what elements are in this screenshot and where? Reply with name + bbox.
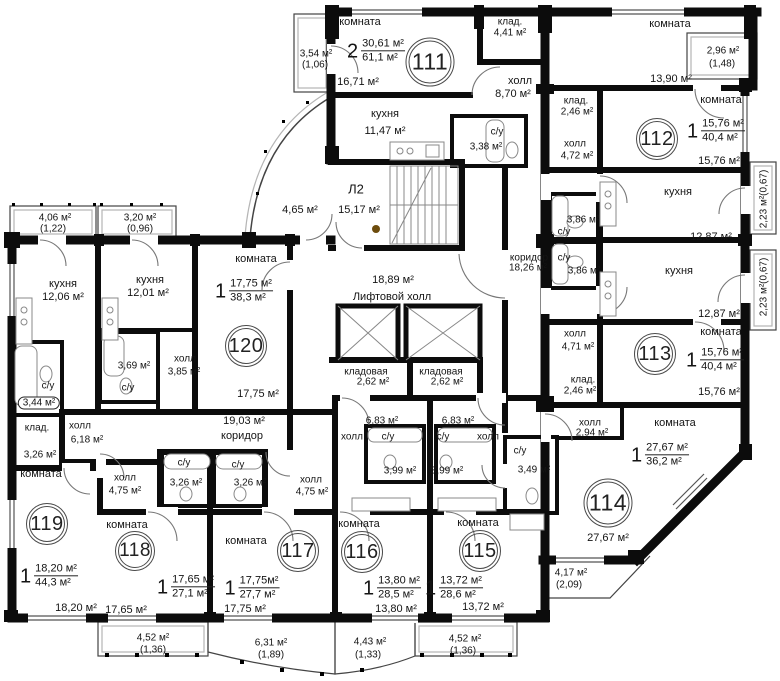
apt116-hall-area: 6,83 м² [366, 416, 398, 427]
apt116-number-circle: 116 [341, 531, 383, 573]
apt118-balcony-area: 4,52 м² [137, 633, 169, 644]
apt118-room-label: комната [106, 519, 148, 531]
apt111-balcony-coef: (1,06) [302, 60, 328, 71]
apt120-wc-area: 3,69 м² [118, 361, 150, 372]
apt116-total-area: 28,5 м² [377, 589, 421, 602]
apt119-kitchen-label: кухня [49, 278, 77, 290]
apt120-total-area: 38,3 м² [229, 292, 273, 305]
apt118-wc-area: 3,26 м² [170, 478, 202, 489]
apt112-balcony-top-area: 2,96 м² [707, 46, 739, 57]
floor-plan: Л2 15,17 м² 4,65 м² 18,89 м² Лифтовой хо… [0, 0, 780, 681]
apt118-total-area: 27,1 м² [171, 588, 215, 601]
apt112-balcony-side: 2,23 м²(0,67) [759, 170, 770, 229]
apt112-kitchen-label: кухня [664, 186, 692, 198]
apt117-wc-label: с/у [232, 460, 245, 471]
apt120-balcony-coef: (0,96) [127, 224, 153, 235]
apt120-room-area: 17,75 м² [237, 388, 279, 400]
apt113-balcony-side: 2,23 м²(0,67) [759, 258, 770, 317]
apt120-balcony-area: 3,20 м² [124, 213, 156, 224]
apt119-wc-label: с/у [42, 381, 55, 392]
apt118-hall-label: холл [114, 473, 136, 484]
apt115-hall-label: холл [477, 432, 499, 443]
storeroom2-area: 2,62 м² [431, 377, 463, 388]
apt114-wc-area: 3,49 м² [518, 465, 550, 476]
apt119-room-label: комната [20, 468, 62, 480]
lift-hall-label: Лифтовой холл [353, 291, 431, 303]
apt112-wc-label: с/у [558, 227, 571, 238]
apt113-room-area: 15,76 м² [698, 386, 740, 398]
apt113-room-label: комната [700, 326, 742, 338]
apt114-summary: 1 27,67 м²36,2 м² [631, 441, 689, 468]
apt119-hall-area: 6,18 м² [71, 435, 103, 446]
apt116-balcony-area: 4,43 м² [354, 637, 386, 648]
apt120-summary: 1 17,75 м²38,3 м² [215, 277, 273, 304]
apt115-wc-area: 3,99 м² [431, 466, 463, 477]
apt112-living-area: 15,76 м² [701, 117, 745, 131]
apt111-rooms-count: 2 [347, 41, 358, 61]
apt118-living-area: 17,65 м² [171, 573, 215, 587]
apt118-hall-area: 4,75 м² [109, 486, 141, 497]
apt117-balcony-coef: (1,89) [258, 650, 284, 661]
apt115-living-area: 13,72 м² [439, 574, 483, 588]
apt111-pantry-area: 4,41 м² [494, 28, 526, 39]
corridor-left-area: 19,03 м² [223, 415, 265, 427]
apt117-rooms-count: 1 [225, 578, 236, 598]
storeroom1-area: 2,62 м² [357, 377, 389, 388]
apt111-living-area: 30,61 м² [361, 37, 405, 51]
apt116-summary: 1 13,80 м²28,5 м² [363, 574, 421, 601]
apt116-room-label: комната [338, 518, 380, 530]
apt112-kitchen-area: 12,87 м² [690, 231, 732, 243]
apt112-wc-area: 3,86 м² [567, 215, 599, 226]
apt113-kitchen-label: кухня [665, 265, 693, 277]
apt119-balcony-coef: (1,22) [40, 224, 66, 235]
apt115-room-label: комната [457, 517, 499, 529]
apt111-pantry-label: клад. [498, 17, 523, 28]
corridor-left-label: коридор [221, 430, 263, 442]
apt112-summary: 1 15,76 м²40,4 м² [687, 117, 745, 144]
apt119-kitchen-area: 12,06 м² [42, 291, 84, 303]
apt113-hall-label: холл [564, 329, 586, 340]
apt113-wc-label: с/у [558, 253, 571, 264]
apt116-balcony-coef: (1,33) [355, 650, 381, 661]
apt117-room-label: комната [225, 535, 267, 547]
apt120-kitchen-area: 12,01 м² [127, 287, 169, 299]
apt114-number-circle: 114 [584, 479, 633, 528]
apt117-total-area: 27,7 м² [239, 589, 280, 602]
lift-hall-area: 18,89 м² [372, 274, 414, 286]
apt117-hall-label: холл [300, 475, 322, 486]
apt117-balcony-area: 6,31 м² [255, 638, 287, 649]
apt114-rooms-count: 1 [631, 445, 642, 465]
stair-marker-dot [372, 225, 380, 233]
apt112-pantry-area: 2,46 м² [561, 107, 593, 118]
apt112-pantry-label: клад. [564, 96, 589, 107]
apt118-balcony-coef: (1,36) [140, 645, 166, 656]
stair-area: 15,17 м² [338, 204, 380, 216]
apt118-number-circle: 118 [115, 531, 155, 571]
apt111-number-circle: 111 [406, 38, 455, 87]
apt116-hall-label: холл [341, 432, 363, 443]
stair-label: Л2 [348, 182, 364, 197]
apt119-living-area: 18,20 м² [34, 562, 78, 576]
apt112-room2-area: 15,76 м² [698, 155, 740, 167]
apt113-pantry-label: клад. [571, 375, 596, 386]
apt117-room-area: 17,75 м² [224, 603, 266, 615]
apt112-room1-area: 13,90 м² [650, 73, 692, 85]
apt120-number-circle: 120 [225, 325, 267, 367]
apt116-wc-area: 3,99 м² [384, 466, 416, 477]
apt117-number-circle: 117 [277, 530, 319, 572]
apt117-hall-area: 4,75 м² [296, 487, 328, 498]
apt111-total-area: 61,1 м² [361, 52, 405, 65]
apt119-rooms-count: 1 [20, 566, 31, 586]
apt112-room2-label: комната [700, 94, 742, 106]
apt119-summary: 1 18,20 м²44,3 м² [20, 562, 78, 589]
apt116-living-area: 13,80 м² [377, 574, 421, 588]
apt119-hall-label: холл [69, 421, 91, 432]
apt113-number-circle: 113 [634, 333, 676, 375]
apt112-hall-area: 4,72 м² [561, 151, 593, 162]
staircase [390, 166, 458, 244]
apt115-balcony-coef: (1,36) [450, 646, 476, 657]
apt116-rooms-count: 1 [363, 578, 374, 598]
apt115-summary: 1 13,72 м²28,6 м² [425, 574, 483, 601]
apt119-wc-area: 3,44 м² [18, 397, 60, 410]
apt118-summary: 1 17,65 м²27,1 м² [157, 573, 215, 600]
apt111-summary: 2 30,61 м²61,1 м² [347, 37, 405, 64]
apt111-kitchen-area: 11,47 м² [365, 125, 406, 137]
apt118-wc-label: с/у [178, 458, 191, 469]
apt114-hall-area: 2,94 м² [576, 428, 608, 439]
apt111-balcony-area: 3,54 м² [300, 49, 332, 60]
apt119-pantry-label: клад. [25, 423, 50, 434]
apt115-wc-label: с/у [437, 432, 450, 443]
lift-shafts [338, 306, 480, 360]
apt118-rooms-count: 1 [157, 577, 168, 597]
apt115-room-area: 13,72 м² [462, 601, 504, 613]
apt114-room-label: комната [654, 417, 696, 429]
apt113-pantry-area: 2,46 м² [564, 386, 596, 397]
apt112-total-area: 40,4 м² [701, 132, 745, 145]
apt114-total-area: 36,2 м² [645, 456, 689, 469]
apt117-living-area: 17,75м² [239, 574, 280, 588]
apt113-summary: 1 15,76 м²40,4 м² [686, 346, 744, 373]
apt120-hall-label: холл [174, 354, 196, 365]
apt114-living-area: 27,67 м² [645, 441, 689, 455]
apt120-rooms-count: 1 [215, 281, 226, 301]
apt115-hall-area: 6,83 м² [442, 416, 474, 427]
corridor-right-area: 18,26 м² [509, 263, 547, 274]
apt114-room-area: 27,67 м² [587, 532, 629, 544]
apt115-number-circle: 115 [459, 530, 501, 572]
apt111-wc-area: 3,38 м² [470, 142, 502, 153]
apt115-rooms-count: 1 [425, 578, 436, 598]
apt119-balcony-area: 4,06 м² [39, 213, 71, 224]
apt120-living-area: 17,75 м² [229, 277, 273, 291]
apt115-total-area: 28,6 м² [439, 589, 483, 602]
apt113-living-area: 15,76 м² [700, 346, 744, 360]
apt114-wc-label: с/у [514, 446, 527, 457]
apt113-total-area: 40,4 м² [700, 361, 744, 374]
apt119-room-area: 18,20 м² [55, 602, 97, 614]
apt117-wc-area: 3,26 м² [234, 478, 266, 489]
apt111-room-area: 16,71 м² [337, 76, 379, 88]
apt114-balcony-coef: (2,09) [556, 580, 582, 591]
vestibule-area: 4,65 м² [282, 204, 318, 216]
apt113-kitchen-area: 12,87 м² [698, 308, 740, 320]
apt120-hall-area: 3,85 м² [168, 367, 200, 378]
apt113-hall-area: 4,71 м² [562, 342, 594, 353]
apt120-wc-label: с/у [122, 383, 135, 394]
apt118-room-area: 17,65 м² [105, 604, 147, 616]
apt112-number-circle: 112 [636, 118, 678, 160]
apt112-balcony-top-coef: (1,48) [709, 59, 735, 70]
apt116-room-area: 13,80 м² [375, 603, 417, 615]
apt112-hall-label: холл [564, 139, 586, 150]
apt119-number-circle: 119 [26, 503, 68, 545]
apt114-balcony-area: 4,17 м² [555, 568, 587, 579]
apt111-room-label: комната [339, 16, 381, 28]
apt111-kitchen-label: кухня [371, 108, 399, 120]
apt116-wc-label: с/у [382, 432, 395, 443]
apt111-hall-area: 8,70 м² [495, 88, 531, 100]
apt117-summary: 1 17,75м²27,7 м² [225, 574, 280, 601]
apt119-total-area: 44,3 м² [34, 577, 78, 590]
apt119-pantry-area: 3,26 м² [24, 450, 56, 461]
apt113-rooms-count: 1 [686, 350, 697, 370]
apt115-balcony-area: 4,52 м² [449, 634, 481, 645]
apt120-room-label: комната [235, 253, 277, 265]
apt120-kitchen-label: кухня [136, 274, 164, 286]
apt111-hall-label: холл [508, 75, 532, 87]
apt112-rooms-count: 1 [687, 121, 698, 141]
apt112-room1-label: комната [649, 18, 691, 30]
apt111-wc-label: с/у [491, 127, 504, 138]
apt113-wc-area: 3,86 м² [568, 266, 600, 277]
